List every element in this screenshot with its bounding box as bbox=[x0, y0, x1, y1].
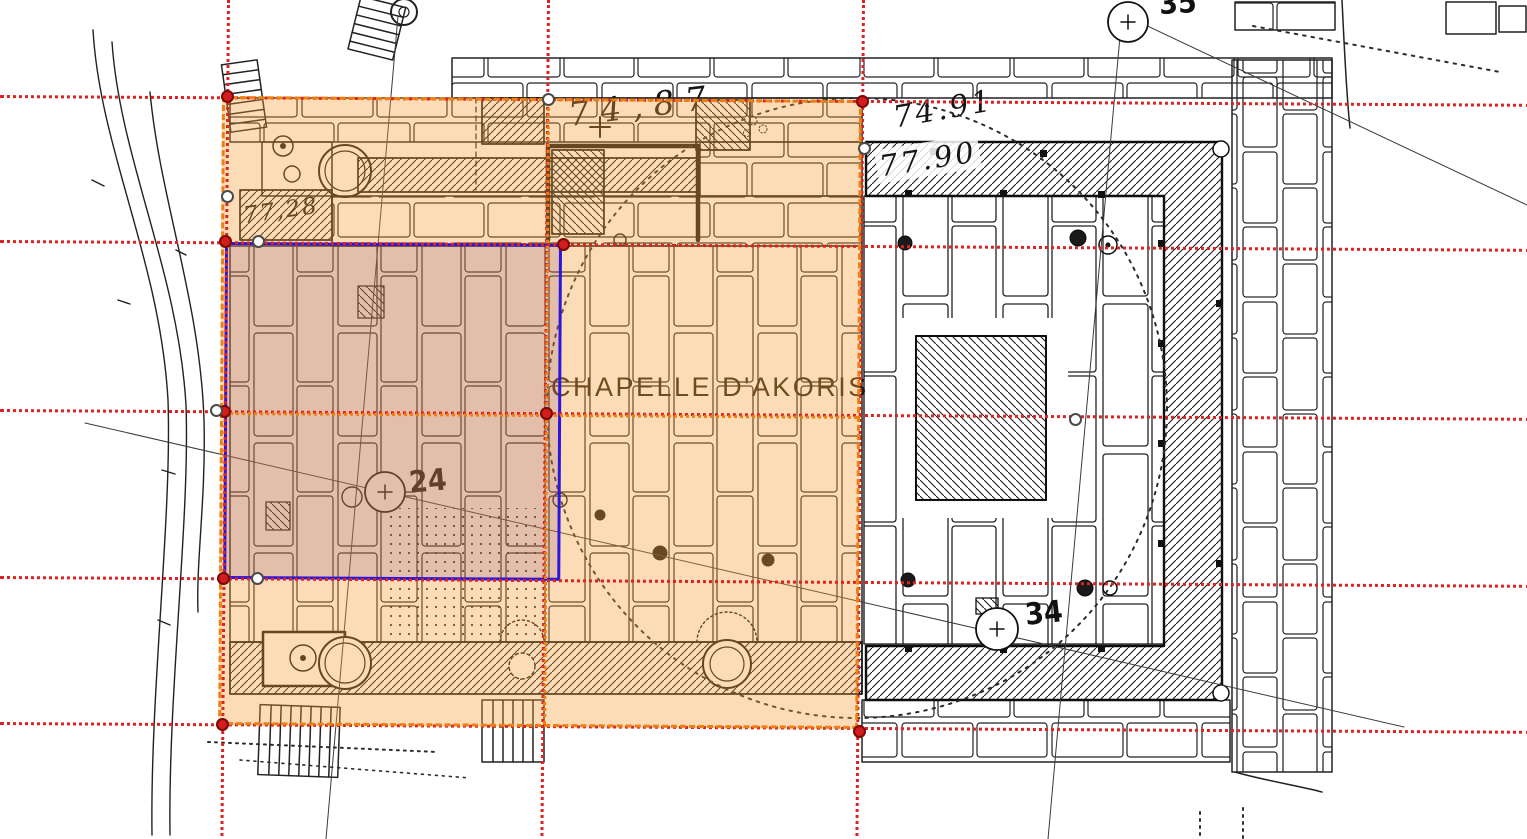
red-drag-handle[interactable] bbox=[217, 572, 230, 585]
red-drag-handle[interactable] bbox=[853, 725, 866, 738]
white-drag-handle[interactable] bbox=[542, 93, 555, 106]
plan-annotation-stage: 74,87 74.91 77.90 77,28 CHAPELLE D'AKORI… bbox=[0, 0, 1527, 839]
red-drag-handle[interactable] bbox=[856, 95, 869, 108]
white-drag-handle[interactable] bbox=[1069, 413, 1082, 426]
white-drag-handle[interactable] bbox=[252, 235, 265, 248]
red-drag-handle[interactable] bbox=[557, 238, 570, 251]
red-drag-handle[interactable] bbox=[216, 718, 229, 731]
terrain-lines bbox=[92, 30, 204, 835]
survey-marker-label-35: 35 bbox=[1158, 0, 1197, 22]
red-drag-handle[interactable] bbox=[540, 407, 553, 420]
white-drag-handle[interactable] bbox=[210, 404, 223, 417]
white-drag-handle[interactable] bbox=[251, 572, 264, 585]
white-drag-handle[interactable] bbox=[858, 142, 871, 155]
red-drag-handle[interactable] bbox=[221, 90, 234, 103]
red-drag-handle[interactable] bbox=[219, 235, 232, 248]
white-drag-handle[interactable] bbox=[221, 190, 234, 203]
survey-marker-label-34: 34 bbox=[1023, 594, 1064, 633]
